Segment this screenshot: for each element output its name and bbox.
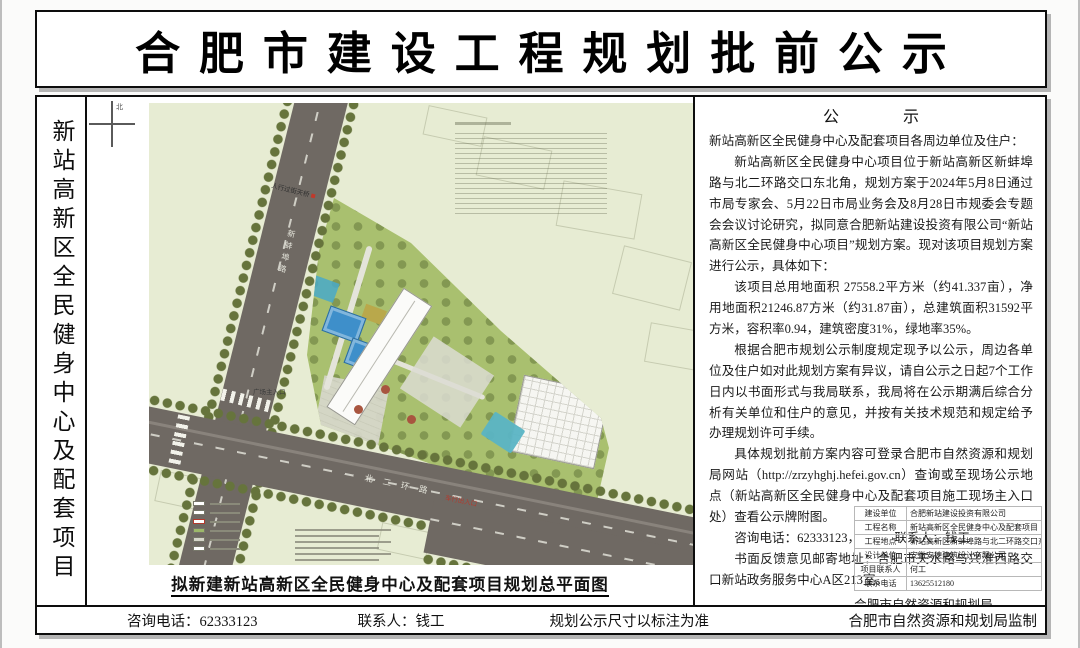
plan-notes	[295, 529, 391, 565]
table-row: 项目联系人 何工	[855, 563, 1042, 577]
ghost-building	[644, 322, 695, 371]
legend-swatch	[193, 546, 205, 551]
notice-paragraph: 根据合肥市规划公示制度规定现予以公示，周边各单位及住户如对此规划方案有异议，请自…	[709, 340, 1033, 444]
row-value: 13625512180	[907, 577, 1042, 591]
legend-swatch	[193, 519, 205, 524]
north-label: 北	[116, 102, 123, 112]
plan-caption-row: 拟新建新站高新区全民健身中心及配套项目规划总平面图	[87, 571, 693, 595]
row-value: 新站高新区新蚌埠路与北二环路交口东北角	[907, 535, 1042, 549]
notice-paragraph: 新站高新区全民健身中心及配套项目各周边单位及住户：	[709, 131, 1033, 152]
row-label: 工程名称	[855, 521, 907, 535]
footer-bar: 咨询电话：62333123 联系人：钱工 规划公示尺寸以标注为准 合肥市自然资源…	[35, 605, 1047, 635]
notice-paragraph: 该项目总用地面积 27558.2平方米（约41.337亩），净用地面积21246…	[709, 277, 1033, 340]
pavilion	[381, 385, 390, 394]
row-value: 新站高新区全民健身中心及配套项目	[907, 521, 1042, 535]
notice-title: 公 示	[709, 103, 1033, 127]
row-label: 建设单位	[855, 507, 907, 521]
consult-phone: 咨询电话：62333123，	[734, 528, 860, 549]
side-strip: 新站高新区全民健身中心及配套项目	[37, 97, 87, 605]
project-info-table: 建设单位 合肥新站建设投资有限公司 工程名称 新站高新区全民健身中心及配套项目 …	[854, 506, 1042, 591]
notice-poster: 合肥市建设工程规划批前公示 新站高新区全民健身中心及配套项目 北	[35, 10, 1047, 635]
row-value: 合肥新站建设投资有限公司	[907, 507, 1042, 521]
row-label: 联系电话	[855, 577, 907, 591]
notice-panel: 公 示 新站高新区全民健身中心及配套项目各周边单位及住户： 新站高新区全民健身中…	[695, 97, 1045, 605]
row-value: 安徽安德建筑设计有限公司	[907, 549, 1042, 563]
page-title: 合肥市建设工程规划批前公示	[116, 17, 966, 82]
main-frame: 新站高新区全民健身中心及配套项目 北	[35, 95, 1047, 607]
plan-legend	[193, 499, 413, 553]
title-box: 合肥市建设工程规划批前公示	[35, 10, 1047, 88]
legend-swatch	[193, 510, 205, 515]
project-name-vertical: 新站高新区全民健身中心及配套项目	[44, 119, 78, 583]
pavilion	[354, 405, 363, 414]
table-row: 建设单位 合肥新站建设投资有限公司	[855, 507, 1042, 521]
table-row: 工程地点 新站高新区新蚌埠路与北二环路交口东北角	[855, 535, 1042, 549]
row-label: 工程地点	[855, 535, 907, 549]
row-label: 项目联系人	[855, 563, 907, 577]
plaza-entrance-label: 广场主入口	[253, 386, 286, 396]
indicators-table-block	[455, 129, 607, 215]
footer-producer: 合肥市自然资源和规划局监制	[849, 610, 1038, 631]
legend-swatch	[193, 528, 205, 533]
plan-caption: 拟新建新站高新区全民健身中心及配套项目规划总平面图	[171, 576, 609, 597]
legend-swatch	[193, 537, 205, 542]
site-plan-panel: 北	[87, 97, 695, 605]
scan-edge-left	[0, 0, 2, 648]
site-plan-drawing: 人行过街天桥 新蚌埠路 北二环路 广场主入口 车行出入口	[149, 103, 695, 565]
table-row: 设计单位 安徽安德建筑设计有限公司	[855, 549, 1042, 563]
table-row: 工程名称 新站高新区全民健身中心及配套项目	[855, 521, 1042, 535]
pavilion	[407, 415, 416, 424]
notice-paragraph: 新站高新区全民健身中心项目位于新站高新区新蚌埠路与北二环路交口东北角，规划方案于…	[709, 152, 1033, 277]
row-value: 何工	[907, 563, 1042, 577]
ghost-building	[612, 245, 692, 310]
footer-phone: 咨询电话：62333123	[127, 610, 258, 631]
legend-swatch	[193, 501, 205, 506]
row-label: 设计单位	[855, 549, 907, 563]
north-cross-mark: 北	[89, 101, 135, 147]
footer-note: 规划公示尺寸以标注为准	[550, 610, 710, 631]
table-row: 联系电话 13625512180	[855, 577, 1042, 591]
footer-contact: 联系人：钱工	[358, 610, 445, 631]
